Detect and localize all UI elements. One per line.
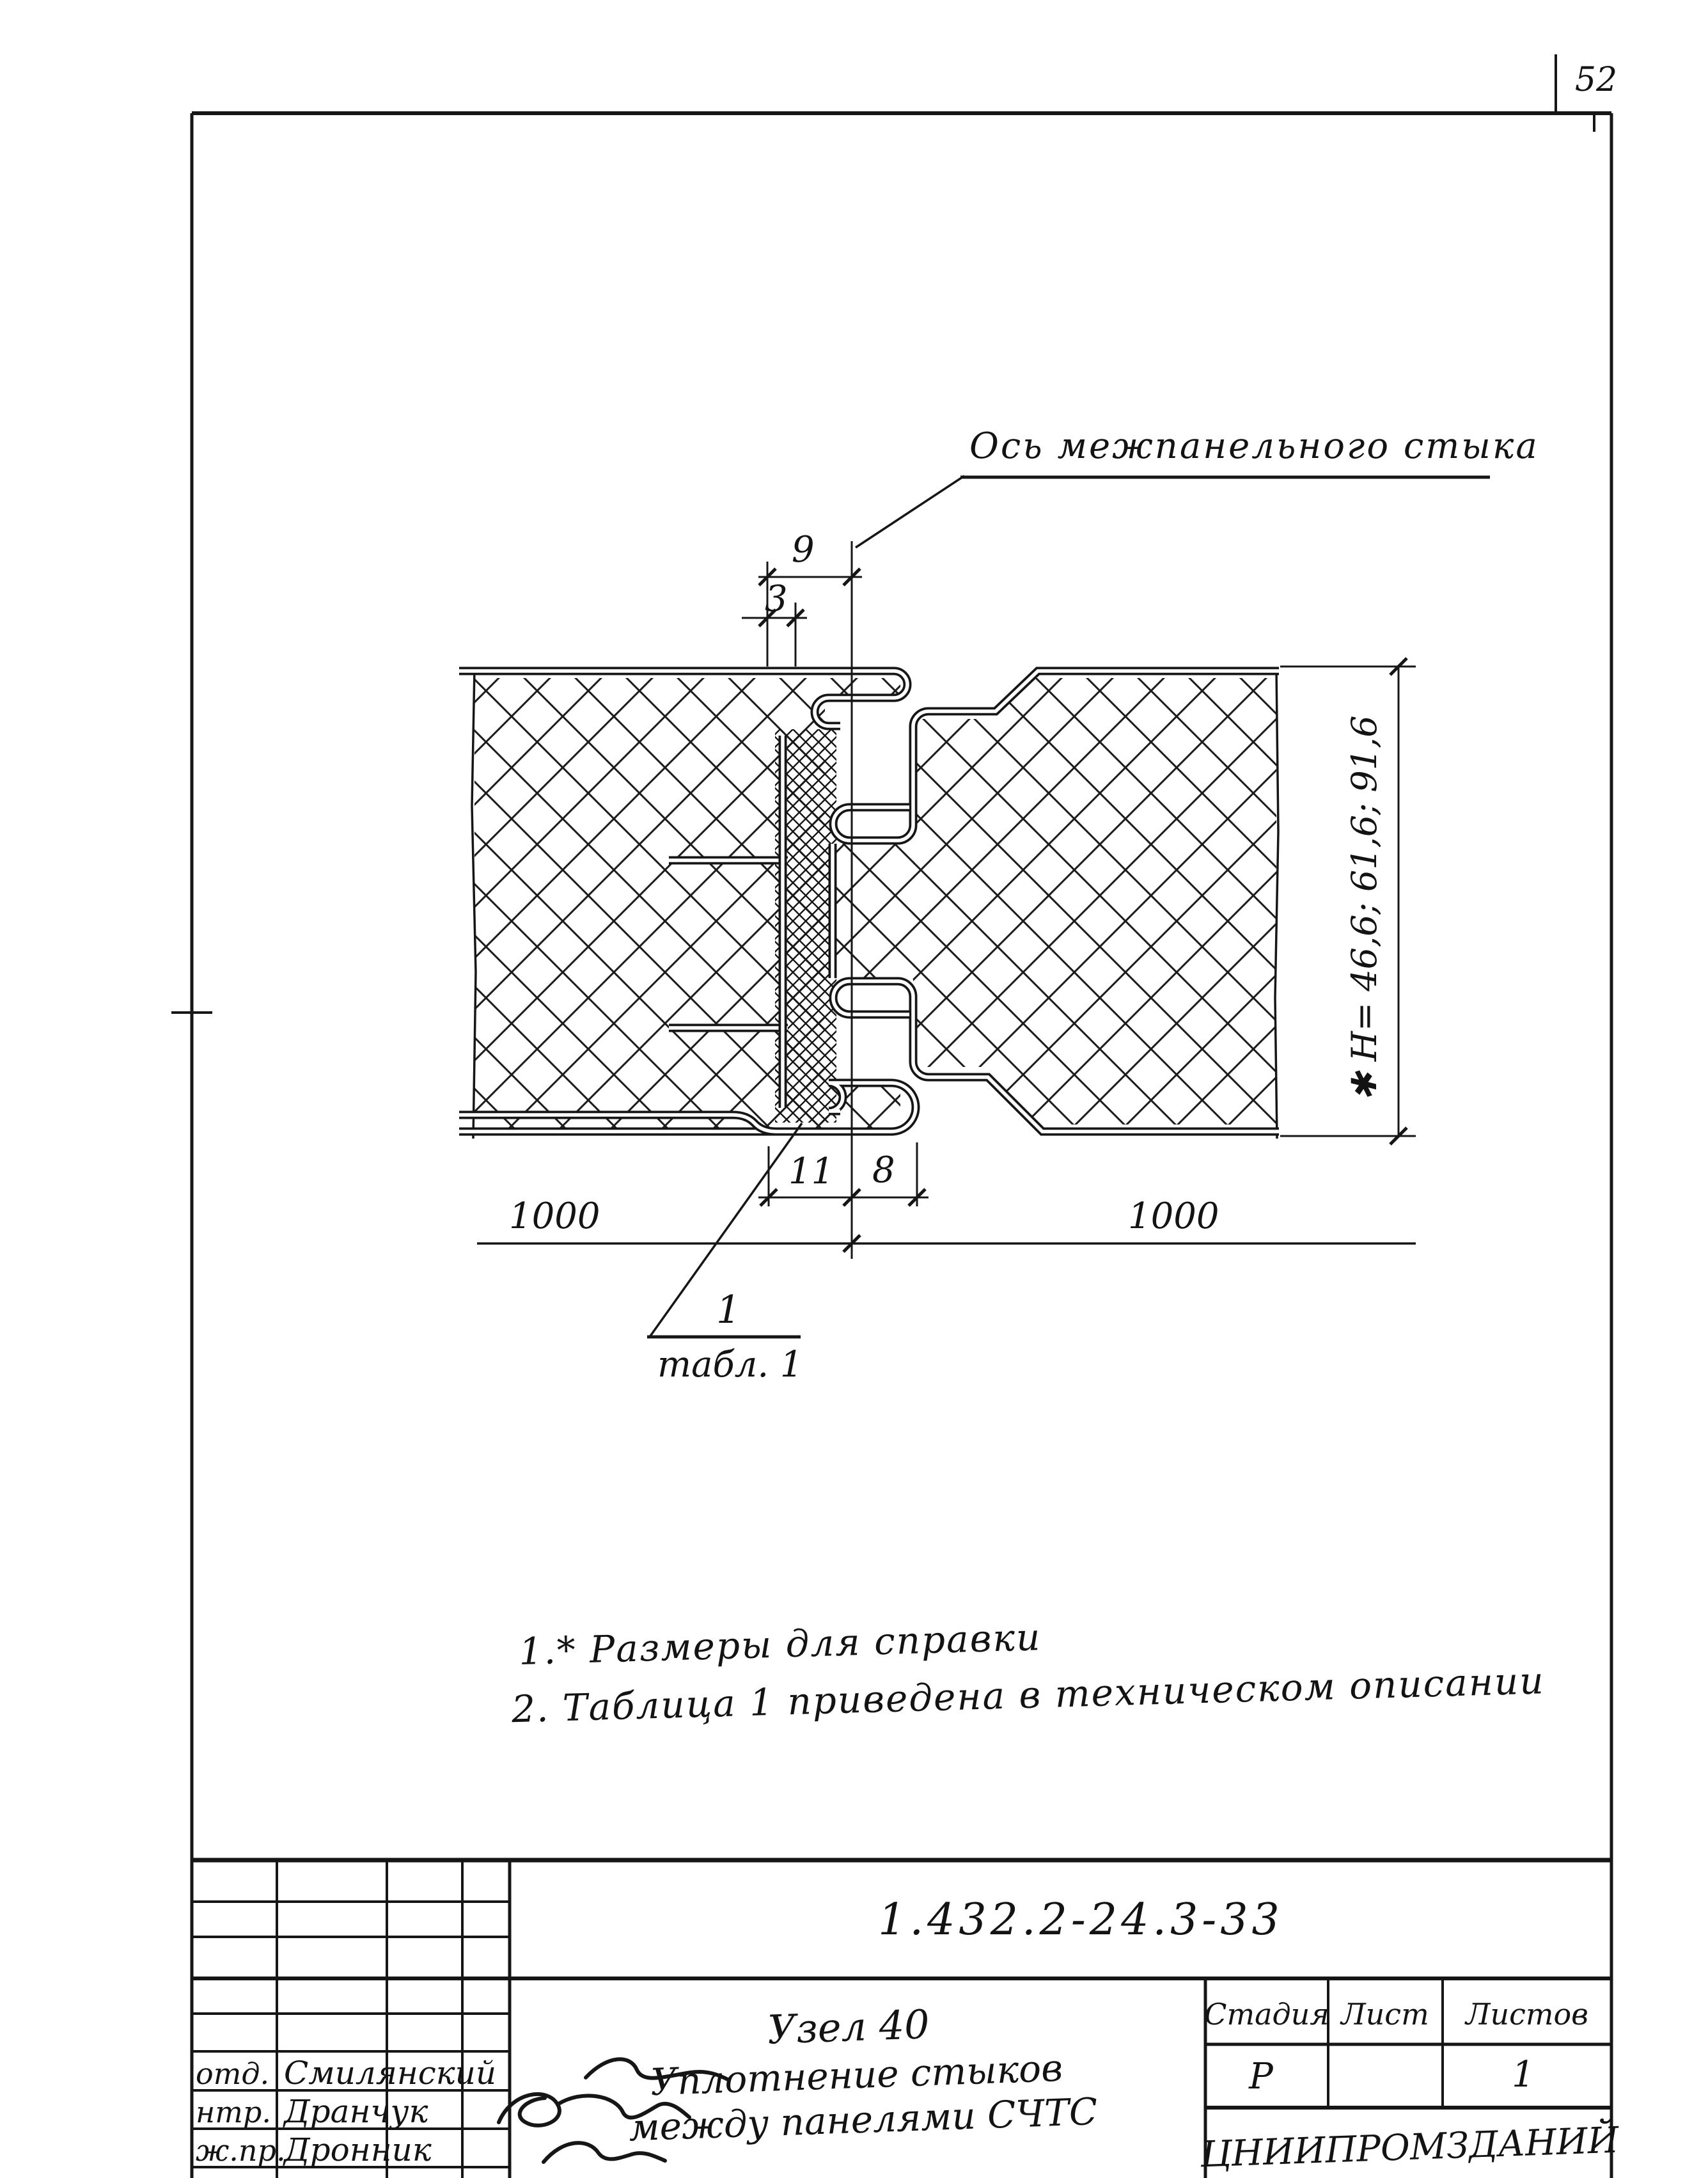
signature-role: нтр. <box>196 2095 271 2129</box>
dim-text-3: 3 <box>765 578 788 620</box>
panel-section <box>472 669 1278 1139</box>
dim-text-1000-right: 1000 <box>1128 1196 1219 1237</box>
document-number: 1.432.2-24.3-33 <box>878 1895 1283 1945</box>
signature-name: Дранчук <box>283 2093 428 2130</box>
stage-header: Стадия <box>1204 1997 1329 2032</box>
dim-text-9: 9 <box>792 529 815 571</box>
node-title: Узел 40 <box>767 2001 930 2053</box>
signature-name: Дронник <box>283 2131 432 2168</box>
drawing-sheet: 52 <box>0 0 1708 2178</box>
dim-text-11: 11 <box>788 1151 834 1192</box>
sheet-header: Лист <box>1340 1997 1429 2032</box>
axis-label-leader <box>856 476 964 548</box>
revision-grid-verticals <box>277 1860 462 2178</box>
callout: 1 табл. 1 <box>647 1123 803 1385</box>
blueprint-canvas: 52 <box>0 0 1708 2178</box>
right-panel-insulation-hatch <box>913 678 1276 1125</box>
title-block: 1.432.2-24.3-33 Узел 40 Уплотнение стыко… <box>192 1860 1620 2178</box>
dim-text-8: 8 <box>872 1149 895 1191</box>
signature-role: ж.пр. <box>196 2133 286 2168</box>
signature-name: Смилянский <box>284 2055 496 2092</box>
axis-label: Ось межпанельного стыка <box>969 425 1539 467</box>
revision-grid <box>192 1860 510 2178</box>
sheets-value: 1 <box>1512 2054 1535 2095</box>
dim-text-height: ✱ H= 46,6; 61,6; 91,6 <box>1344 715 1384 1101</box>
callout-reference: табл. 1 <box>657 1344 803 1385</box>
note-1: 1.* Размеры для справки <box>519 1615 1042 1673</box>
organization: ЦНИИПРОМЗДАНИЙ <box>1199 2117 1620 2176</box>
signature-role: отд. <box>196 2056 269 2091</box>
notes: 1.* Размеры для справки 2. Таблица 1 при… <box>509 1601 1546 1731</box>
sheets-header: Листов <box>1464 1997 1588 2032</box>
joint-channel-hatch <box>834 844 914 979</box>
callout-item: 1 <box>716 1288 740 1332</box>
stage-sheet-table: Стадия Лист Листов Р 1 ЦНИИПРОМЗДАНИЙ <box>1199 1978 1620 2178</box>
sheet-number: 52 <box>1575 61 1617 99</box>
dim-text-1000-left: 1000 <box>509 1196 600 1237</box>
stage-value: Р <box>1248 2056 1274 2097</box>
note-2: 2. Таблица 1 приведена в техническом опи… <box>510 1659 1545 1731</box>
